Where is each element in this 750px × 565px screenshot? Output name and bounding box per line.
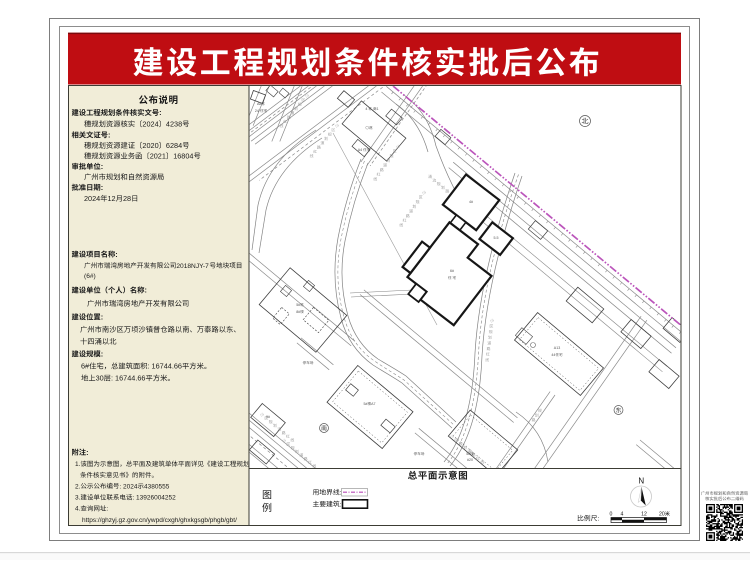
svg-text::: : — [115, 250, 117, 259]
svg-text:30: 30 — [96, 374, 104, 383]
svg-text:: 2024: : 2024 — [119, 483, 137, 490]
svg-text:12: 12 — [108, 194, 116, 203]
svg-text:: 16744.66: : 16744.66 — [148, 362, 183, 371]
svg-text:: 16744.66: : 16744.66 — [111, 374, 146, 383]
svg-text:2021: 2021 — [150, 152, 166, 161]
svg-text:0: 0 — [610, 512, 613, 518]
svg-text::: : — [159, 108, 161, 117]
svg-text::: : — [101, 313, 103, 322]
svg-text:2024: 2024 — [142, 120, 158, 129]
svg-text::: : — [106, 506, 108, 513]
svg-text:8#: 8# — [296, 310, 300, 314]
svg-text:5.5: 5.5 — [494, 236, 499, 240]
svg-text::: : — [101, 183, 103, 192]
svg-text:: 13926004252: : 13926004252 — [132, 495, 176, 502]
svg-text:,: , — [372, 107, 373, 111]
svg-text:2020: 2020 — [142, 141, 158, 150]
svg-text:2018NJY-7: 2018NJY-7 — [176, 263, 209, 270]
svg-text:6284: 6284 — [166, 141, 182, 150]
svg-text:A13: A13 — [554, 346, 560, 350]
svg-text:4: 4 — [621, 512, 624, 518]
svg-text:24: 24 — [255, 109, 259, 113]
svg-text::: : — [101, 350, 103, 359]
svg-text::: : — [597, 516, 599, 523]
svg-text:12: 12 — [641, 512, 647, 518]
svg-text:1.: 1. — [75, 461, 81, 468]
svg-text:1: 1 — [377, 107, 379, 111]
svg-text:16804: 16804 — [173, 152, 193, 161]
svg-text:4238: 4238 — [166, 120, 182, 129]
svg-text:4.: 4. — [75, 506, 81, 513]
svg-text:6#: 6# — [450, 269, 454, 273]
svg-text::: : — [86, 448, 88, 457]
svg-text:https://ghzyj.gz.gov.cn/ywpd/c: https://ghzyj.gz.gov.cn/ywpd/cxgh/ghxkgs… — [82, 517, 237, 524]
svg-text:4: 4 — [365, 107, 367, 111]
svg-text:5#: 5# — [296, 303, 300, 307]
svg-text:2024: 2024 — [84, 194, 100, 203]
svg-text:2.: 2. — [75, 483, 81, 490]
svg-text:44: 44 — [551, 353, 555, 357]
svg-text:9#: 9# — [266, 415, 270, 419]
svg-text:3.: 3. — [75, 495, 81, 502]
svg-text::: : — [145, 286, 147, 295]
svg-text:A4: A4 — [358, 148, 362, 152]
svg-text:6#: 6# — [81, 362, 90, 371]
svg-text:20: 20 — [659, 512, 665, 518]
svg-text:A7: A7 — [371, 402, 375, 406]
svg-text:4#: 4# — [469, 200, 473, 204]
svg-text:5#: 5# — [364, 402, 368, 406]
svg-text::: : — [108, 131, 110, 140]
svg-text::: : — [101, 162, 103, 171]
svg-text:A8: A8 — [257, 102, 261, 106]
svg-text:#20: #20 — [467, 458, 473, 462]
svg-text:5#: 5# — [466, 452, 470, 456]
svg-text::: : — [340, 501, 342, 508]
svg-text:4380555: 4380555 — [144, 483, 170, 490]
svg-text:28: 28 — [123, 194, 131, 203]
svg-text:N: N — [638, 477, 644, 486]
svg-text:(6#): (6#) — [84, 273, 96, 280]
